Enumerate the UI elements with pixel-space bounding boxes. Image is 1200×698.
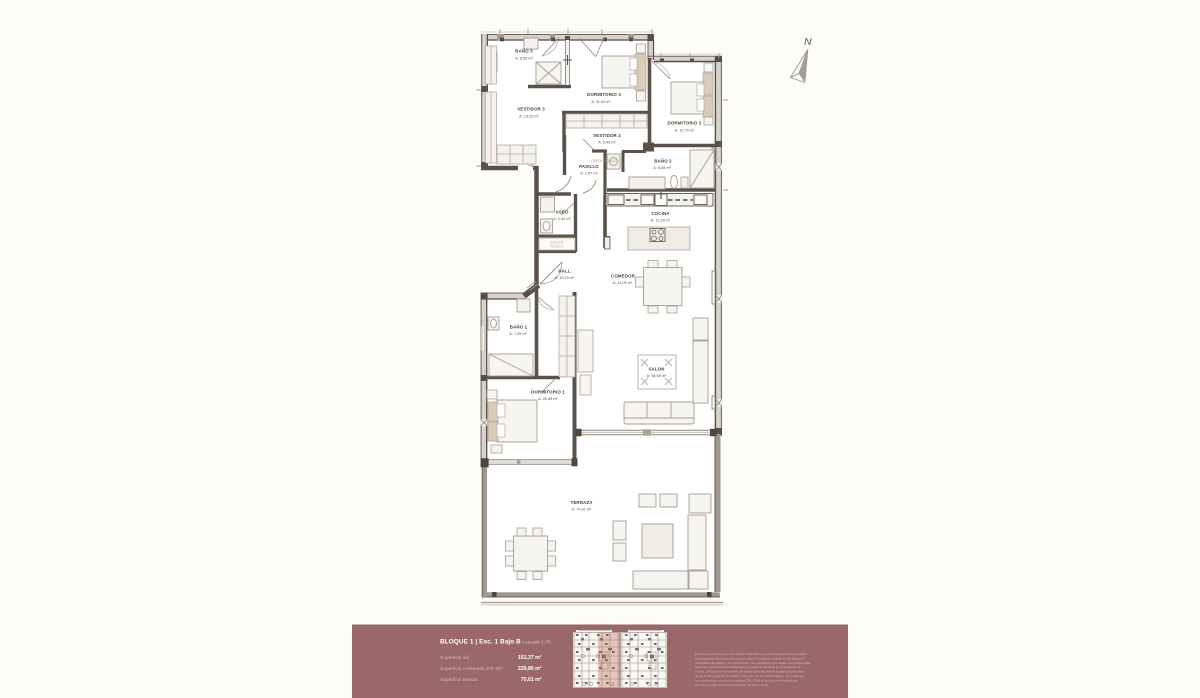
svg-text:A: 70,01 m²: A: 70,01 m² bbox=[572, 508, 592, 512]
svg-text:163,37 m²: 163,37 m² bbox=[518, 655, 542, 661]
svg-text:DORMITORIO 3: DORMITORIO 3 bbox=[587, 92, 621, 97]
svg-text:PASILLO: PASILLO bbox=[579, 164, 599, 169]
svg-text:A: 2,54 m²: A: 2,54 m² bbox=[553, 217, 571, 221]
svg-text:son orientativas y conforme a: son orientativas y conforme a decreto 21… bbox=[695, 678, 798, 682]
svg-text:A: 11,09 m²: A: 11,09 m² bbox=[613, 281, 633, 285]
svg-text:Superficie construida S/R M²*: Superficie construida S/R M²* bbox=[440, 666, 503, 672]
svg-text:A: 20,88 m²: A: 20,88 m² bbox=[538, 397, 558, 401]
svg-text:de las zonas comunes del edifi: de las zonas comunes del edificio confor… bbox=[695, 674, 804, 678]
svg-text:A: 6,65 m²: A: 6,65 m² bbox=[515, 57, 533, 61]
svg-text:El presente documento es de ca: El presente documento es de carácter inf… bbox=[695, 652, 808, 656]
svg-text:COCINA: COCINA bbox=[651, 211, 670, 216]
svg-text:A: 2,87 m²: A: 2,87 m² bbox=[580, 172, 598, 176]
svg-text:la obra. La superficie constru: la obra. La superficie construida con zo… bbox=[695, 670, 804, 674]
svg-text:BAÑO 3: BAÑO 3 bbox=[515, 49, 533, 54]
svg-text:SALON: SALON bbox=[648, 367, 664, 372]
svg-text:BAÑO 1: BAÑO 1 bbox=[510, 325, 528, 330]
svg-text:70,01 m²: 70,01 m² bbox=[521, 677, 542, 683]
svg-text:A: 6,49 m²: A: 6,49 m² bbox=[598, 141, 616, 145]
svg-text:HALL: HALL bbox=[558, 269, 570, 274]
svg-text:A: 10,70 m²: A: 10,70 m² bbox=[675, 129, 695, 133]
svg-text:DEPOSITO ACS: DEPOSITO ACS bbox=[591, 159, 617, 163]
svg-text:Superficie útil: Superficie útil bbox=[440, 655, 469, 661]
svg-text:modificaciones derivadas del p: modificaciones derivadas del proyecto. B… bbox=[695, 656, 805, 660]
svg-text:DORMITORIO 2: DORMITORIO 2 bbox=[668, 121, 702, 126]
svg-text:BAÑO 2: BAÑO 2 bbox=[654, 159, 672, 164]
svg-text:encuentra a disposición la inf: encuentra a disposición la información c… bbox=[695, 683, 769, 687]
svg-text:A: 7,39 m²: A: 7,39 m² bbox=[509, 332, 527, 336]
svg-text:229,86 m²: 229,86 m² bbox=[518, 666, 542, 672]
svg-text:Superficie terraza: Superficie terraza bbox=[440, 677, 478, 683]
svg-text:A: 12,24 m²: A: 12,24 m² bbox=[651, 219, 671, 223]
svg-text:A: 11,64 m²: A: 11,64 m² bbox=[591, 100, 611, 104]
svg-text:DORMITORIO 1: DORMITORIO 1 bbox=[531, 390, 565, 395]
svg-text:A: 38,69 m²: A: 38,69 m² bbox=[647, 374, 667, 378]
svg-text:N: N bbox=[804, 36, 812, 48]
svg-text:A: 10,19 m²: A: 10,19 m² bbox=[555, 276, 575, 280]
svg-text:VESTIDOR 3: VESTIDOR 3 bbox=[517, 107, 545, 112]
svg-text:A: 8,88 m²: A: 8,88 m² bbox=[653, 166, 671, 170]
svg-text:pudiendo experimentar modifica: pudiendo experimentar modificaciones por… bbox=[695, 665, 801, 669]
svg-text:TELECO: TELECO bbox=[550, 245, 564, 249]
svg-text:ASEO: ASEO bbox=[555, 210, 568, 215]
svg-text:BLOQUE 1 | Esc. 1 Bajo B | esc: BLOQUE 1 | Esc. 1 Bajo B | escala 1:75 bbox=[440, 639, 551, 646]
svg-text:A: 13,20 m²: A: 13,20 m² bbox=[519, 115, 539, 119]
svg-text:VESTIDOR 2: VESTIDOR 2 bbox=[593, 133, 621, 138]
svg-text:COMEDOR: COMEDOR bbox=[611, 274, 636, 279]
svg-text:meramente decorativo y no está: meramente decorativo y no está incluido.… bbox=[695, 661, 812, 665]
svg-text:TERRAZA: TERRAZA bbox=[570, 500, 593, 505]
